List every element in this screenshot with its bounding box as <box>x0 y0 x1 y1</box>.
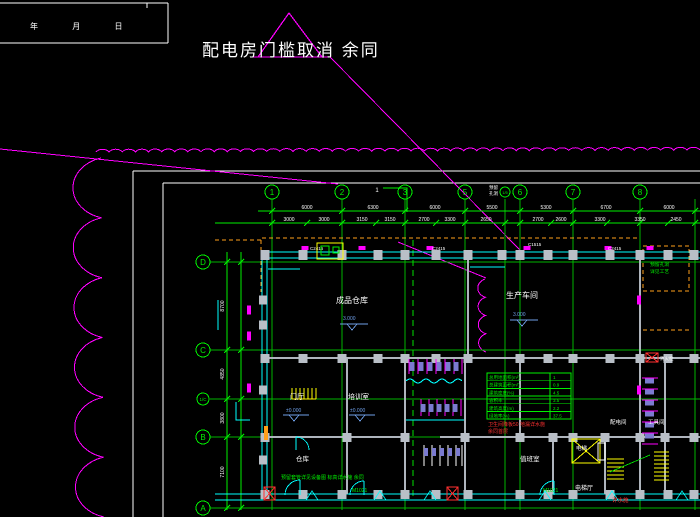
svg-text:建筑高度(m): 建筑高度(m) <box>489 405 514 412</box>
svg-text:3350: 3350 <box>634 217 645 223</box>
indicator-table: 总用地面积(m²) 1 总建筑面积(m²) 0.9 建筑密度(%) 4.5 容积… <box>487 373 571 435</box>
svg-text:3150: 3150 <box>384 217 395 223</box>
svg-text:3.5: 3.5 <box>553 398 560 403</box>
svg-text:5: 5 <box>463 188 468 197</box>
revision-leader-lines <box>0 57 520 278</box>
room-lobby: 门厅 <box>290 392 304 401</box>
svg-text:3000: 3000 <box>318 217 329 223</box>
grid-bubble-C: C <box>196 343 210 357</box>
window-door-tags <box>247 246 654 395</box>
exterior-walls <box>215 252 700 500</box>
svg-text:2650: 2650 <box>480 217 491 223</box>
svg-text:C2415: C2415 <box>608 246 622 251</box>
svg-text:6300: 6300 <box>367 205 378 211</box>
svg-text:37.5: 37.5 <box>553 414 562 419</box>
table-red-note-1: 卫生间降板50 地漏详水施 <box>488 421 545 428</box>
grid-bubble-6: 6 <box>513 185 527 199</box>
toilet-fixtures-bottom <box>421 404 458 412</box>
left-porch-details <box>218 300 250 420</box>
dim-text-left: 8700485038007100 <box>220 300 226 477</box>
svg-text:2: 2 <box>340 188 345 197</box>
svg-text:1: 1 <box>553 375 556 380</box>
elev-hall-left: 3.000 <box>340 316 368 330</box>
room-tool: 工具间 <box>648 418 665 426</box>
svg-text:M1021: M1021 <box>352 488 368 494</box>
svg-text:3.000: 3.000 <box>513 312 526 318</box>
grid-bubble-sub: 1/5 <box>500 187 510 197</box>
dimension-lines <box>215 188 700 511</box>
svg-text:3300: 3300 <box>594 217 605 223</box>
grid-bubbles-top: 1 2 3 5 1/5 6 7 8 <box>265 185 647 199</box>
svg-text:C1515: C1515 <box>528 242 542 247</box>
grid-bubble-5: 5 <box>458 185 472 199</box>
svg-text:C: C <box>200 346 206 355</box>
svg-text:2.2: 2.2 <box>553 406 560 411</box>
room-elev-hall: 电梯厅 <box>575 484 593 492</box>
svg-text:6700: 6700 <box>600 205 611 211</box>
elev-hall-right: 3.000 <box>510 312 538 326</box>
svg-text:6000: 6000 <box>663 205 674 211</box>
grid-bubble-8: 8 <box>633 185 647 199</box>
cad-viewport[interactable]: 配电房门槛取消 余同 年 月 日 <box>0 0 700 517</box>
svg-text:8: 8 <box>638 188 643 197</box>
svg-text:A: A <box>200 504 206 513</box>
stair-3 <box>654 452 669 480</box>
water-wave-line <box>406 379 462 383</box>
svg-text:2700: 2700 <box>532 217 543 223</box>
grid-bubble-3: 3 <box>398 185 412 199</box>
svg-text:1/5: 1/5 <box>502 190 508 195</box>
grid-bubbles-left: D C 1/C B A <box>196 255 210 515</box>
svg-text:6000: 6000 <box>429 205 440 211</box>
title-block-frame <box>0 3 168 43</box>
svg-text:5300: 5300 <box>540 205 551 211</box>
interior-walls <box>262 252 700 494</box>
columns <box>259 250 699 499</box>
dim-text-top-row1: 6000630060005500530067006000 <box>301 205 674 211</box>
svg-text:1: 1 <box>270 188 275 197</box>
grid-bubble-1C: 1/C <box>197 393 209 405</box>
svg-text:C2415: C2415 <box>432 246 446 251</box>
svg-text:3.000: 3.000 <box>343 316 356 322</box>
fire-hydrant-label: 消火栓 <box>660 355 674 362</box>
process-note-1: 预留孔洞 <box>650 261 669 268</box>
elev-training: ±0.000 <box>349 408 375 421</box>
svg-text:4.5: 4.5 <box>553 390 560 395</box>
grid-bubble-D: D <box>196 255 210 269</box>
svg-text:7: 7 <box>571 188 576 197</box>
room-duty: 值班室 <box>520 454 540 463</box>
svg-text:3800: 3800 <box>220 412 226 423</box>
svg-text:绿地率(%): 绿地率(%) <box>489 413 510 420</box>
grid-bubble-1: 1 <box>265 185 279 199</box>
svg-text:0.9: 0.9 <box>553 383 560 388</box>
svg-text:D: D <box>200 258 206 267</box>
elev-lobby: ±0.000 <box>283 408 309 421</box>
svg-text:±0.000: ±0.000 <box>286 408 301 414</box>
orange-door-leaf <box>264 426 268 440</box>
room-power: 配电间 <box>610 418 627 426</box>
grid-bubble-B: B <box>196 430 210 444</box>
toilet-fixtures-top <box>410 362 459 371</box>
svg-text:3000: 3000 <box>283 217 294 223</box>
grid-lines <box>210 199 700 510</box>
svg-text:7100: 7100 <box>220 466 226 477</box>
sub-bubble-note-1: 预留 <box>489 184 498 191</box>
process-note-2: 详见工艺 <box>650 268 669 275</box>
svg-text:总用地面积(m²): 总用地面积(m²) <box>489 374 520 381</box>
grid-bubble-2: 2 <box>335 185 349 199</box>
svg-text:2600: 2600 <box>555 217 566 223</box>
table-red-note-2: 余同首层 <box>488 428 508 435</box>
svg-text:5500: 5500 <box>486 205 497 211</box>
room-hall-left: 成品仓库 <box>336 295 368 305</box>
svg-text:2450: 2450 <box>670 217 681 223</box>
svg-text:6000: 6000 <box>301 205 312 211</box>
toilet-fixtures-right <box>645 379 654 439</box>
svg-text:±0.000: ±0.000 <box>350 408 365 414</box>
svg-text:总建筑面积(m²): 总建筑面积(m²) <box>489 382 520 389</box>
room-training: 培训室 <box>348 392 369 401</box>
window-codes: C2415 C2415 C1515 C2415 <box>310 242 622 251</box>
stall-fixtures-white <box>424 448 460 456</box>
room-hall-right: 生产车间 <box>506 290 538 300</box>
svg-text:3150: 3150 <box>356 217 367 223</box>
revision-note-text: 配电房门槛取消 余同 <box>202 36 380 61</box>
svg-text:1/C: 1/C <box>199 397 207 402</box>
room-elevator: 电梯 <box>576 444 588 452</box>
svg-text:2700: 2700 <box>418 217 429 223</box>
svg-text:8700: 8700 <box>220 300 226 311</box>
room-storage: 仓库 <box>296 454 310 463</box>
svg-text:建筑密度(%): 建筑密度(%) <box>489 389 514 396</box>
grid-bubble-7: 7 <box>566 185 580 199</box>
grid-bubble-A: A <box>196 501 210 515</box>
svg-text:容积率: 容积率 <box>489 397 503 404</box>
stair-2 <box>607 459 624 479</box>
axis-tag-1: 1 <box>375 188 379 194</box>
bottom-green-note: 预留套管详见设备图 标高详水施 余同 <box>281 474 364 481</box>
svg-text:3: 3 <box>403 188 408 197</box>
svg-text:6: 6 <box>518 188 523 197</box>
svg-text:3300: 3300 <box>444 217 455 223</box>
red-tag-text: 详水施 <box>612 496 629 504</box>
svg-text:B: B <box>200 433 205 442</box>
cad-drawing: 6000630060005500530067006000 30003000315… <box>0 0 700 517</box>
svg-text:4850: 4850 <box>220 368 226 379</box>
sub-bubble-note-2: 孔洞 <box>489 190 498 197</box>
